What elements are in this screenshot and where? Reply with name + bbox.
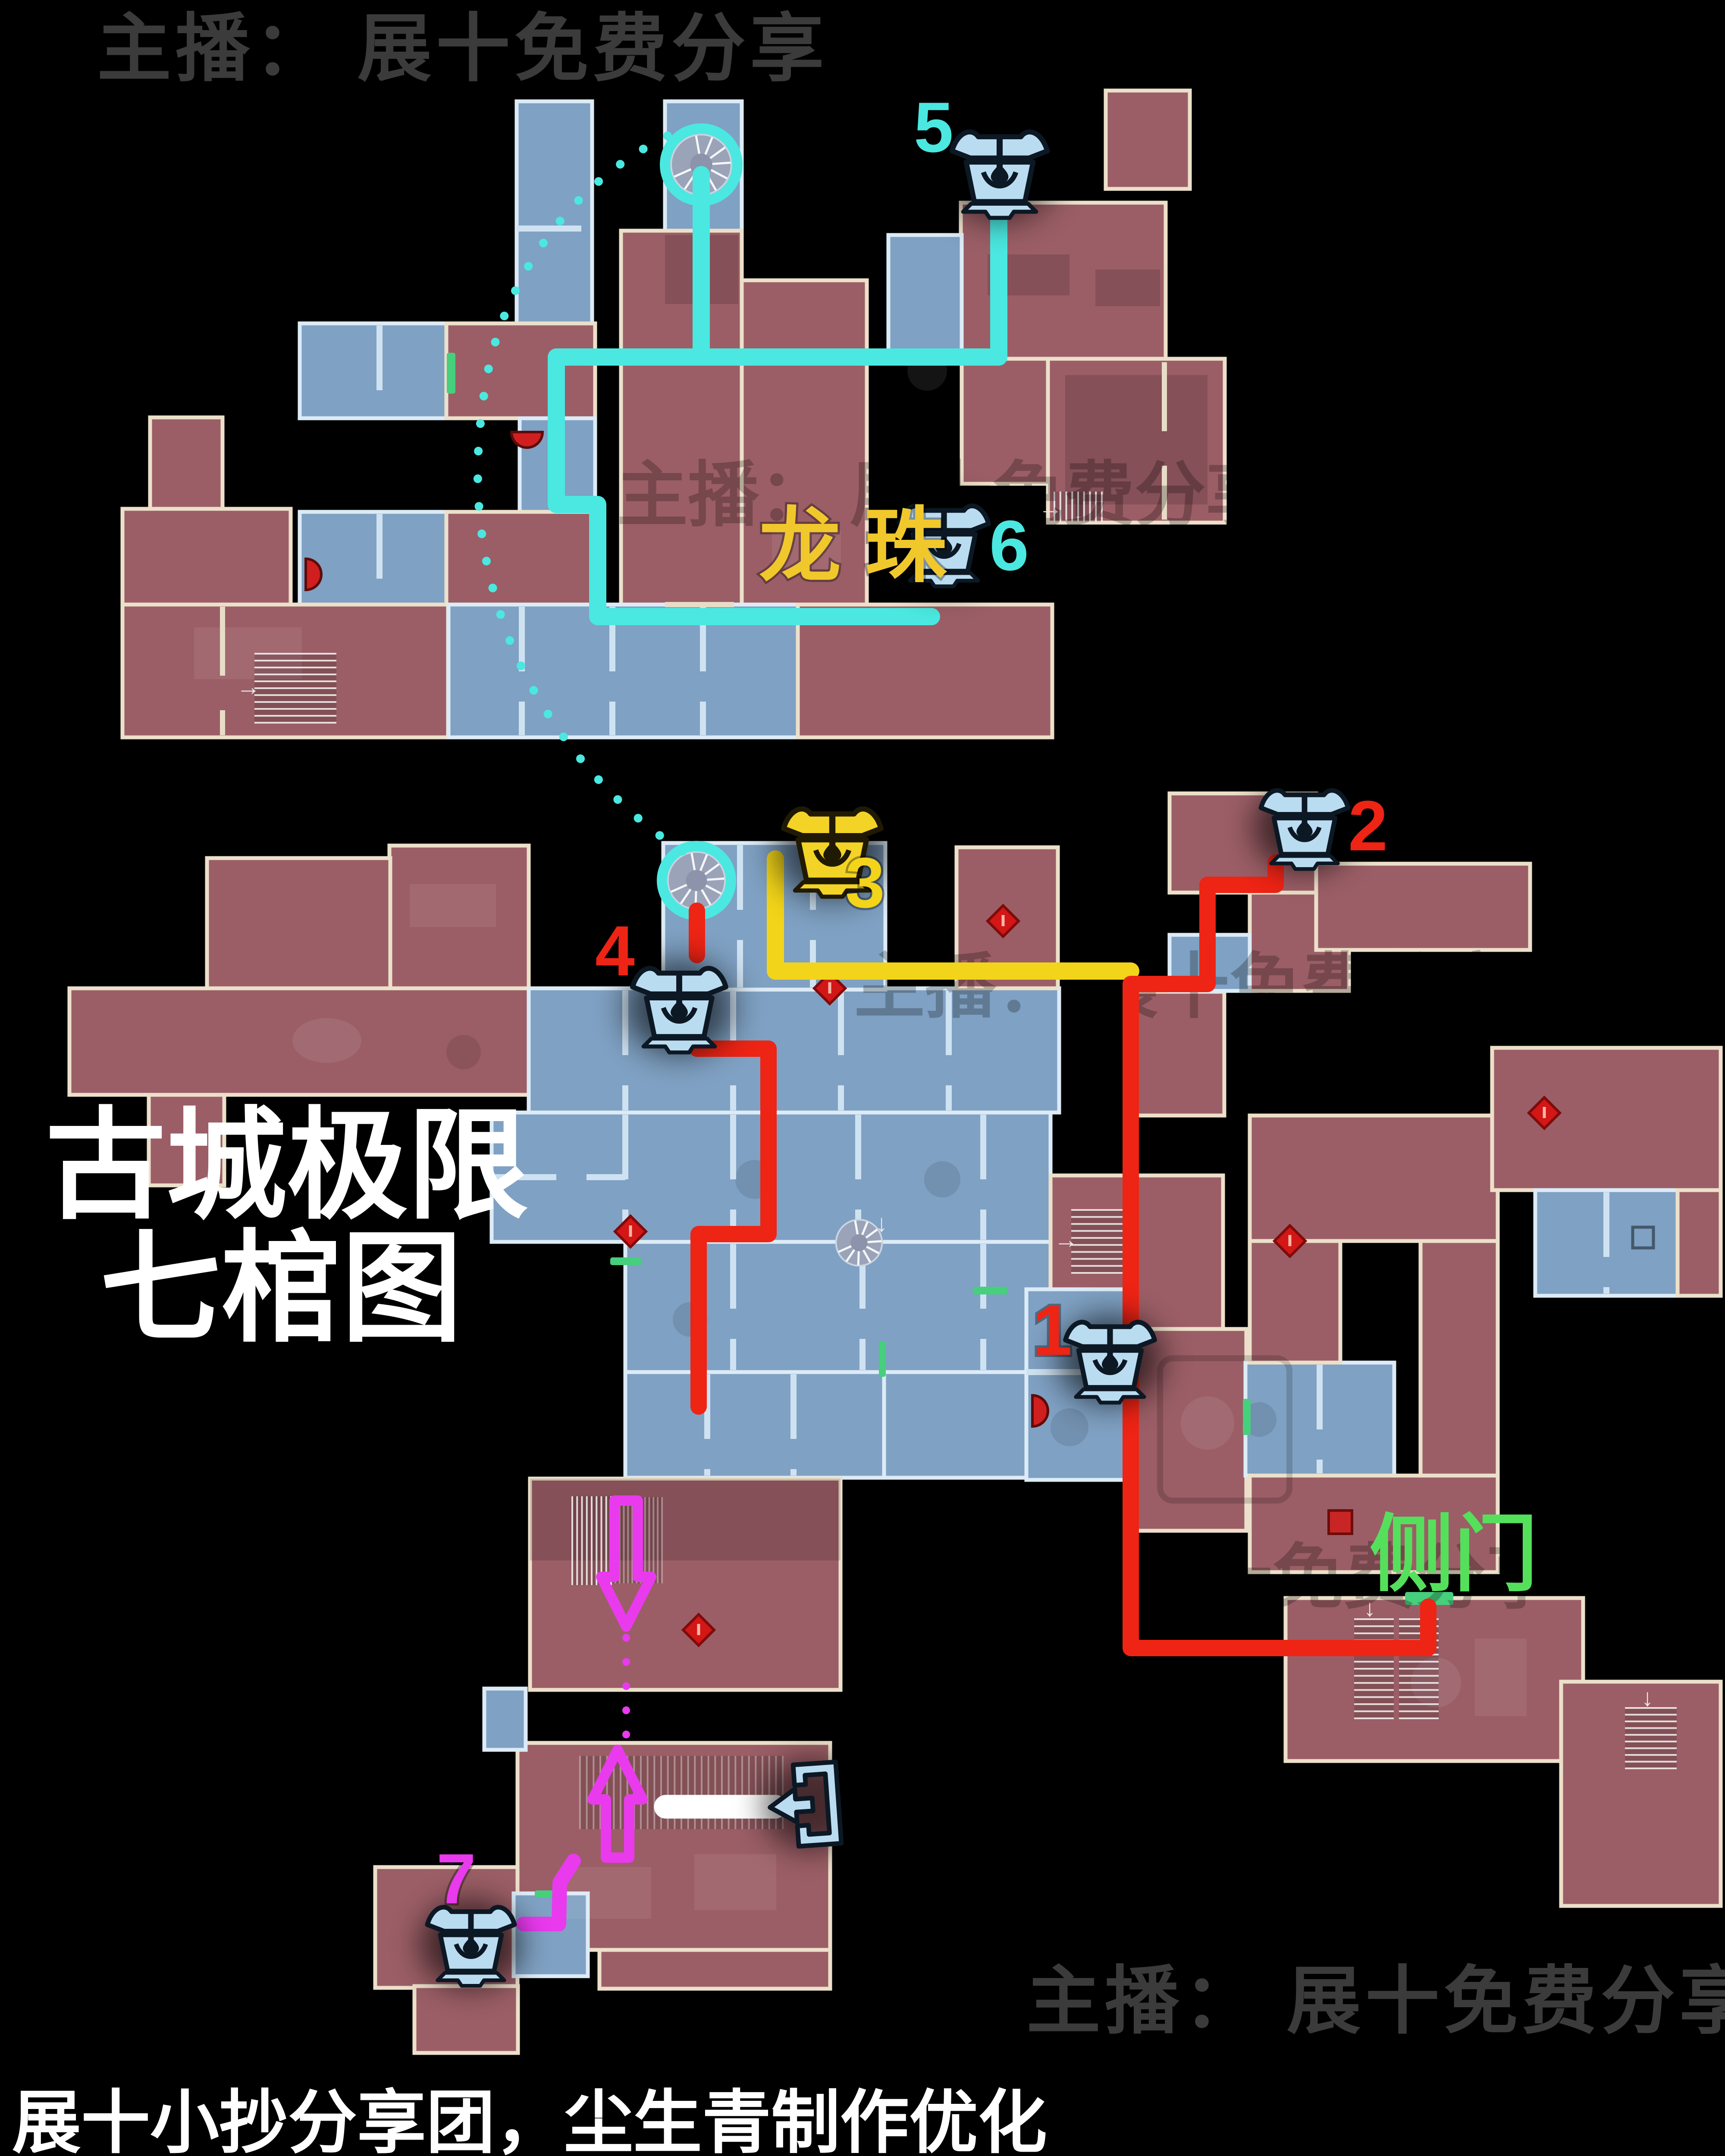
map-room [1492,1048,1721,1190]
map-room [446,512,595,605]
map-room [1316,864,1530,950]
room-decor [410,884,496,927]
coffin-number-2: 2 [1348,786,1388,865]
stairs-direction-arrow-icon: ↓ [1641,1684,1653,1711]
coffin-icon-2 [1254,783,1356,871]
room-decor [1181,1396,1234,1450]
map-room [1678,1190,1721,1296]
map-room [122,509,291,605]
map-room [599,1950,830,1989]
map-room [1250,1241,1340,1363]
map-room [884,1372,1026,1478]
door-marker [1243,1399,1251,1435]
map-room [414,1986,518,2053]
door-marker [973,1287,1007,1294]
map-room [484,1689,526,1750]
stairs-direction-arrow-icon: → [1054,1226,1078,1253]
room-decor [446,1035,481,1069]
credit-line: 展十小抄分享团，尘生青制作优化 [12,2084,1047,2156]
page-title: 古城极限 [45,1099,528,1233]
room-decor [561,1867,651,1919]
coffin-number-5: 5 [914,88,953,167]
room-decor [292,1018,361,1063]
coffin-number-1: 1 [1032,1291,1072,1370]
map-room [300,512,446,605]
coffin-number-4: 4 [595,911,635,990]
room-decor [1095,269,1160,306]
stairs-icon [1071,1210,1127,1273]
map-room [446,323,595,418]
map-room [150,417,223,509]
stairs-icon [254,654,336,723]
page-title-line2: 七棺图 [100,1222,462,1356]
watermark-top: 主播： 展十免费分享 [97,7,828,90]
stairs-direction-arrow-icon: → [236,673,260,700]
room-decor [694,1854,776,1910]
coffin-number-3: 3 [845,843,885,922]
map-room [1250,1116,1498,1241]
map-room [625,1372,884,1478]
watermark-bottom: 主播： 展十免费分享 [1026,1960,1725,2043]
stairs-icon [1354,1619,1394,1718]
room-decor [924,1161,960,1197]
room-decor [1051,1408,1088,1446]
coffin-number-6: 6 [989,506,1029,585]
coffin-icon-5 [944,124,1056,221]
spiral-staircase-icon [836,1220,882,1266]
coffin-icon-4 [625,960,734,1056]
map-room [888,235,962,360]
door-marker [879,1341,886,1377]
door-marker [610,1257,641,1265]
coffin-number-7: 7 [436,1839,476,1918]
label-side-door: 侧门 [1370,1507,1538,1601]
map-room [300,323,446,418]
red-square-marker-icon [1329,1510,1352,1534]
label-dragon-pearl: 龙珠 [759,501,970,592]
map-room [517,101,592,328]
door-marker [447,353,455,394]
map-room [207,858,390,988]
room-decor [1475,1639,1527,1716]
coffin-icon-1 [1058,1314,1162,1405]
map-canvas: →→→↓↓↓主播： 展十免费分享主播： 展十免费分享主播： 展十免费分享5623… [0,0,1725,2156]
map-room [1106,91,1190,189]
stairs-icon [1625,1708,1677,1768]
